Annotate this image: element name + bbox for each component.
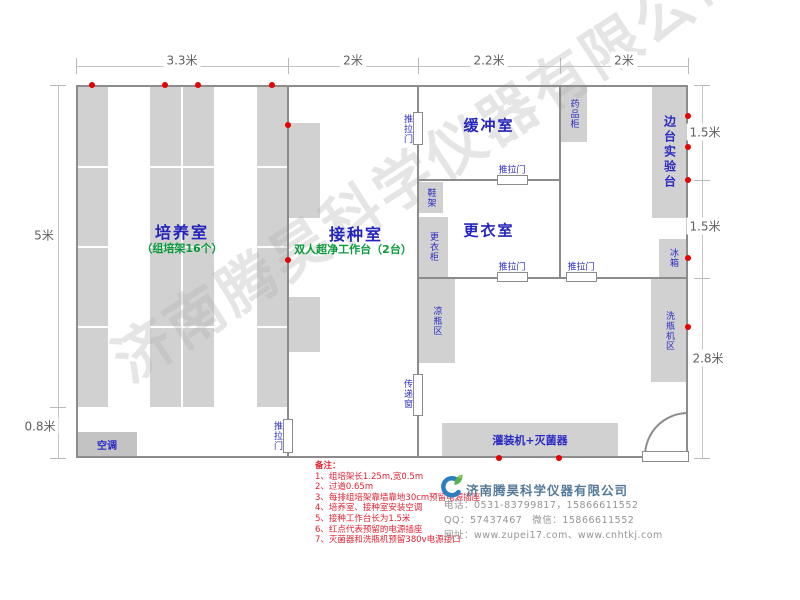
dimension-tick	[76, 58, 77, 74]
sliding-door-buffer-changing	[497, 175, 528, 185]
company-logo-icon	[441, 473, 465, 499]
power-outlet-dot	[685, 177, 691, 183]
dimension-tick	[694, 458, 710, 459]
wall-changing-bottomroom	[418, 277, 688, 279]
left-dimension-line	[58, 85, 59, 458]
sliding-door-buffer-label: 推拉门	[401, 114, 414, 144]
dim-top-2: 2米	[340, 52, 366, 69]
wall-changing-bench	[559, 85, 561, 278]
dimension-tick	[694, 85, 710, 86]
power-outlet-dot	[556, 455, 562, 461]
sliding-door-changing-bottom-label: 推拉门	[498, 260, 525, 273]
company-qq-wechat: QQ：57437467 微信：15866611552	[444, 512, 634, 526]
right-dimension-line	[702, 85, 703, 458]
dimension-tick	[418, 58, 419, 74]
dimension-tick	[694, 278, 710, 279]
dim-right-3: 2.8米	[689, 350, 726, 367]
wall-buffer-changing	[418, 179, 560, 181]
sliding-door-buffer	[413, 112, 423, 145]
power-outlet-dot	[195, 82, 201, 88]
room-sublabel-culture: （组培架16个）	[141, 240, 222, 256]
dim-top-4: 2米	[611, 52, 637, 69]
dimension-tick	[288, 58, 289, 74]
dimension-tick	[50, 85, 66, 86]
sliding-door-buffer-changing-label: 推拉门	[498, 163, 525, 176]
dimension-tick	[560, 58, 561, 74]
dim-top-3: 2.2米	[470, 52, 507, 69]
power-outlet-dot	[285, 122, 291, 128]
room-label-changing: 更衣室	[463, 220, 514, 241]
room-label-buffer: 缓冲室	[463, 115, 514, 136]
room-sublabel-inoculation: 双人超净工作台（2台）	[294, 241, 412, 257]
notes-title: 备注：	[315, 461, 480, 472]
power-outlet-dot	[685, 144, 691, 150]
power-outlet-dot	[685, 113, 691, 119]
power-outlet-dot	[685, 324, 691, 330]
company-phone: 电话：0531-83799817，15866611552	[444, 497, 638, 511]
dimension-tick	[694, 180, 710, 181]
sliding-door-changing-bottom	[497, 272, 528, 282]
sliding-door-culture-label: 推拉门	[271, 421, 284, 451]
sliding-door-bench-bottom	[566, 272, 597, 282]
transfer-window-label: 传递窗	[401, 379, 414, 409]
entrance-door-leaf	[642, 451, 689, 462]
power-outlet-dot	[285, 257, 291, 263]
power-outlet-dot	[89, 82, 95, 88]
dim-left-2: 0.8米	[21, 418, 58, 435]
wall-culture-inoculation	[287, 85, 289, 458]
dimension-tick	[50, 407, 66, 408]
dim-right-1: 1.5米	[686, 124, 723, 141]
company-website: 网址：www.zupei17.com、www.cnhtkj.com	[444, 527, 663, 541]
dim-left-1: 5米	[31, 227, 57, 244]
power-outlet-dot	[269, 82, 275, 88]
dimension-tick	[688, 58, 689, 74]
transfer-window	[413, 374, 423, 416]
floorplan-page: { "watermark": "济南腾昊科学仪器有限公司", "dimensio…	[0, 0, 800, 600]
power-outlet-dot	[496, 455, 502, 461]
dimension-tick	[50, 458, 66, 459]
power-outlet-dot	[162, 82, 168, 88]
sliding-door-culture	[283, 419, 293, 453]
dim-right-2: 1.5米	[686, 218, 723, 235]
dim-top-1: 3.3米	[163, 52, 200, 69]
sliding-door-bench-bottom-label: 推拉门	[567, 260, 594, 273]
power-outlet-dot	[685, 255, 691, 261]
